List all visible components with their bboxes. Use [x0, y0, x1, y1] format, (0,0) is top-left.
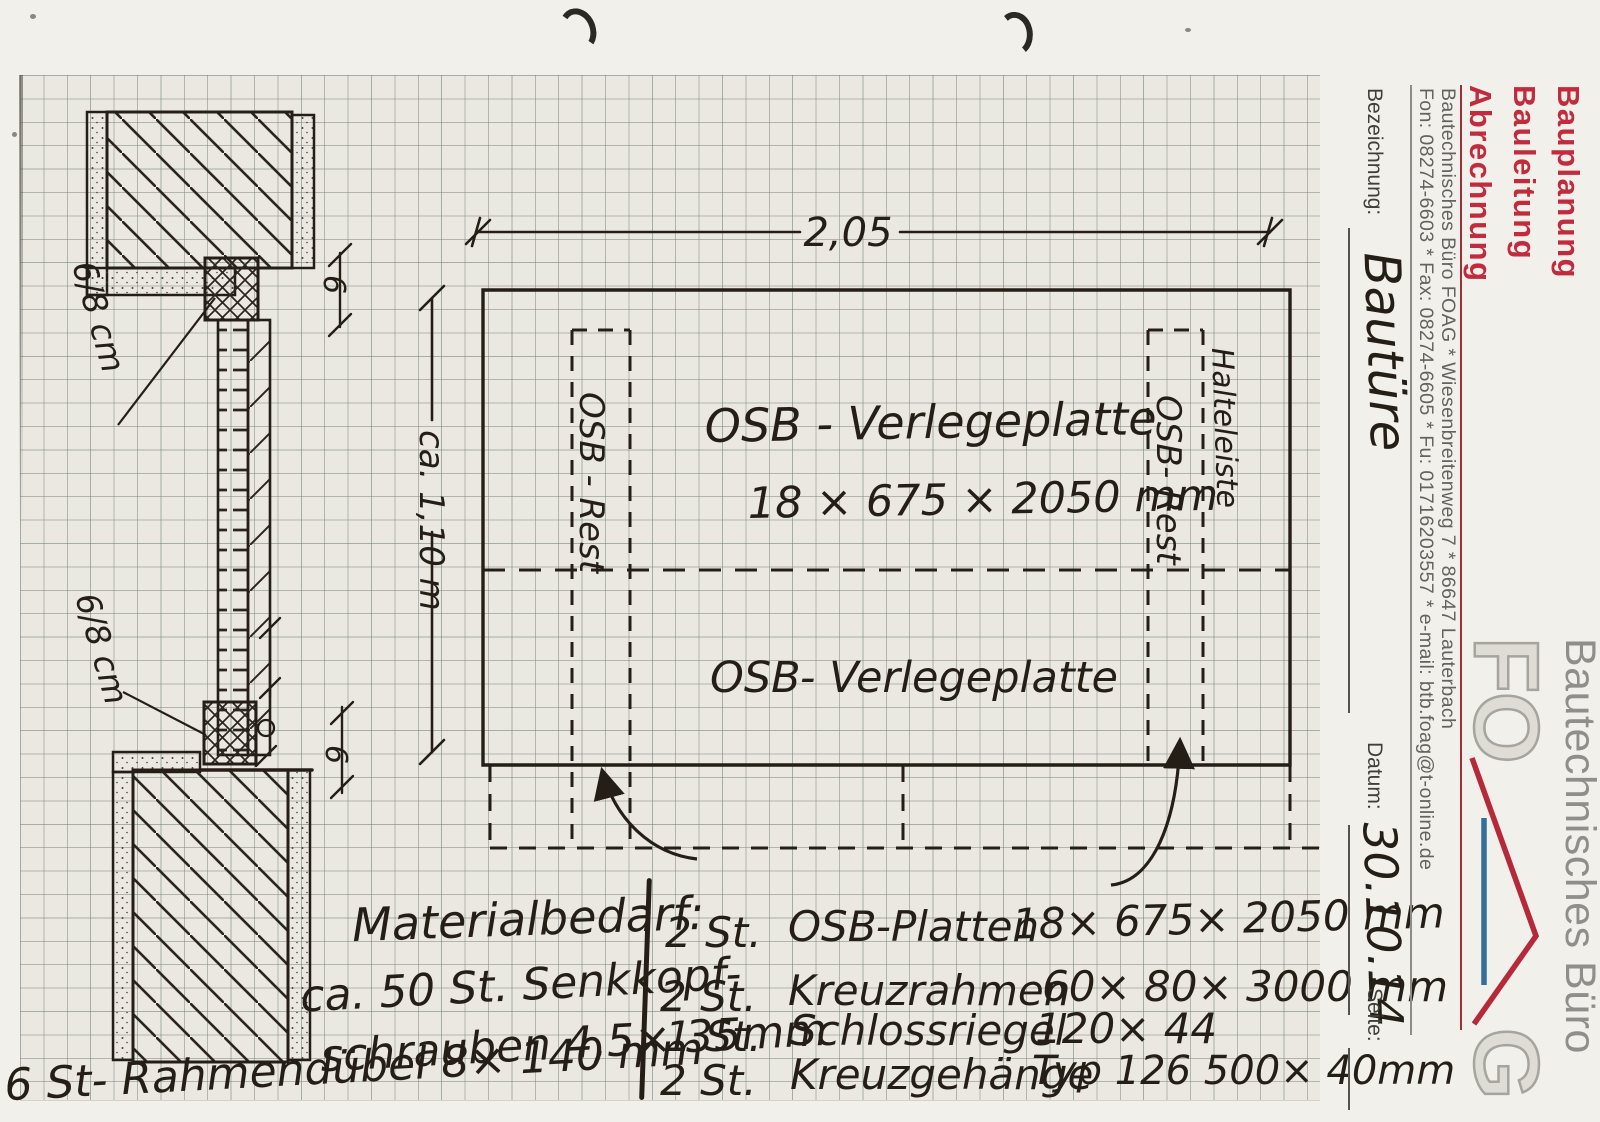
letterhead-rule-bottom: [1410, 85, 1412, 1035]
material-dims: 120× 44: [1035, 1004, 1217, 1053]
height-dim-label: ca. 1,10 m: [411, 430, 451, 611]
scanned-document-page: 6 6/8 cm 6 6/8 cm: [0, 0, 1600, 1122]
plate-size-label: 18 × 675 × 2050 mm: [747, 471, 1218, 529]
bezeichnung-label: Bezeichnung:: [1362, 88, 1386, 215]
logo-firm-name: Bautechnisches Büro: [1555, 638, 1600, 1054]
letterhead-services: Bauplanung Bauleitung Abrechnung: [1458, 85, 1590, 283]
gap-dim-bottom-label: 6: [318, 745, 353, 764]
firm-address-line: Bautechnisches Büro FOAG * Wiesenbreiten…: [1436, 88, 1459, 729]
frame-timber-top: [205, 258, 258, 320]
seite-label: Seite:: [1362, 988, 1386, 1042]
datum-fill-line: [1348, 825, 1350, 1015]
punch-mark-left: [556, 5, 599, 55]
rest-strip-left-label: OSB - Rest: [571, 392, 611, 575]
material-name: Schlossriegel: [790, 1006, 1066, 1055]
punch-mark-right: [995, 10, 1035, 58]
logo-letter-g: G: [1453, 1028, 1558, 1100]
door-plan-drawing: 2,05 ca. 1,10 m OSB - Verlegeplatte 18 ×…: [380, 180, 1380, 900]
upper-wall-lintel: [87, 112, 314, 295]
plate-label: OSB - Verlegeplatte: [704, 391, 1157, 453]
scan-speck: [12, 132, 17, 137]
rest-strip-right-label: OSB- Rest: [1148, 395, 1188, 566]
logo-chevron-a: [1460, 748, 1548, 1040]
scan-speck: [30, 14, 36, 19]
seite-fill-line: [1348, 1048, 1350, 1110]
timber-dim-bottom-label: 6/8 cm: [67, 588, 136, 708]
datum-label: Datum:: [1362, 742, 1386, 810]
service-line: Abrechnung: [1458, 85, 1502, 283]
gap-dim-top-label: 6: [316, 275, 351, 294]
bezeichnung-value: Bautüre: [1353, 251, 1418, 452]
width-dim-label: 2,05: [803, 210, 892, 256]
wall-section-sketch: 6 6/8 cm 6 6/8 cm: [20, 85, 380, 1115]
service-line: Bauleitung: [1502, 85, 1546, 283]
scan-speck: [1185, 28, 1191, 32]
door-panel-section: [218, 320, 270, 755]
flip-arrow-right: [1111, 740, 1180, 885]
letterhead-strip: Bauplanung Bauleitung Abrechnung Bautech…: [1320, 0, 1600, 1122]
material-name: OSB-Platten: [788, 902, 1039, 951]
firm-contact-line: Fon: 08274-6603 * Fax: 08274-6605 * Fu: …: [1414, 88, 1437, 870]
halteleiste-label: Halteleiste: [1204, 347, 1245, 509]
logo-letter-f: F: [1453, 637, 1558, 693]
plate-label-2: OSB- Verlegeplatte: [710, 653, 1118, 703]
frame-timber-bottom: [204, 702, 256, 764]
bezeichnung-fill-line: [1348, 228, 1350, 713]
flip-arrow-left: [602, 770, 697, 859]
leader-line-bottom: [123, 692, 206, 735]
service-line: Bauplanung: [1546, 85, 1590, 283]
lower-wall: [113, 752, 312, 1062]
